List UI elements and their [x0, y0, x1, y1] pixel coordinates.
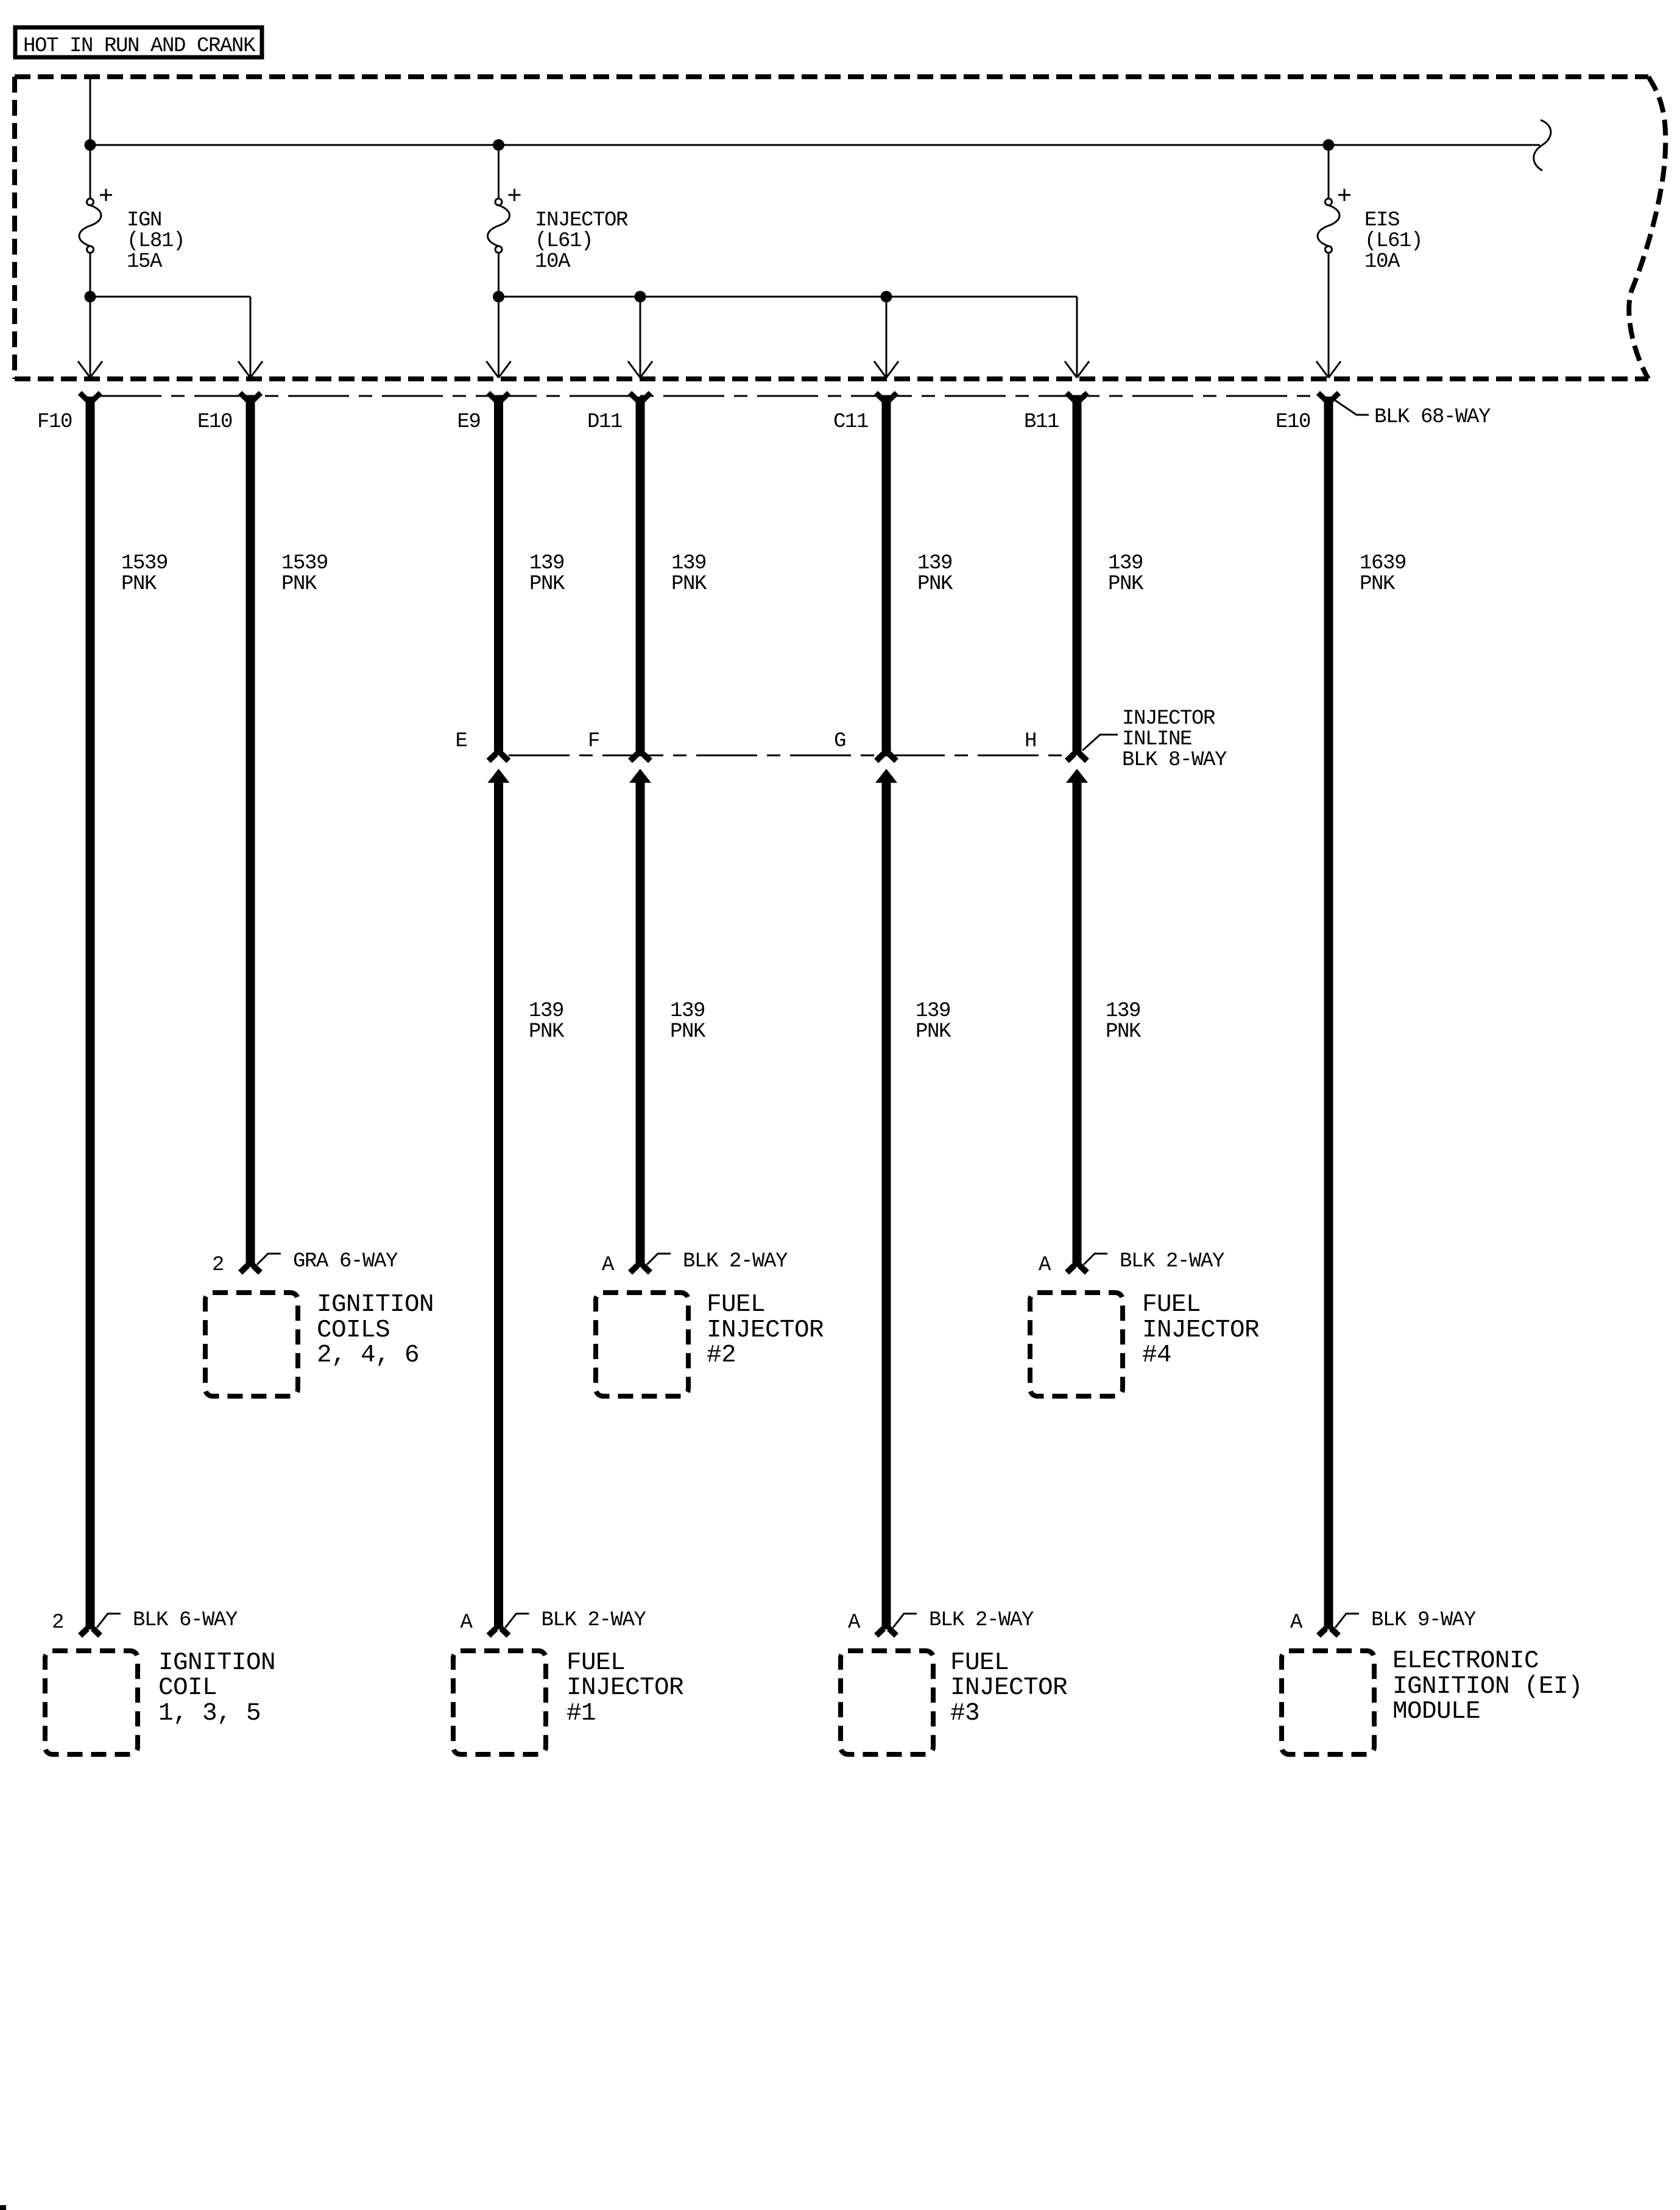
svg-text:139: 139 — [529, 1000, 563, 1023]
svg-text:GRA 6-WAY: GRA 6-WAY — [293, 1250, 398, 1273]
svg-text:INJECTOR: INJECTOR — [1142, 1316, 1259, 1344]
svg-text:EIS: EIS — [1364, 209, 1399, 232]
svg-text:BLK 6-WAY: BLK 6-WAY — [133, 1609, 238, 1632]
svg-text:PNK: PNK — [670, 1020, 706, 1043]
svg-text:BLK 9-WAY: BLK 9-WAY — [1371, 1609, 1476, 1632]
svg-text:FUEL: FUEL — [950, 1649, 1009, 1677]
svg-text:1539: 1539 — [281, 552, 328, 575]
svg-text:G: G — [834, 730, 845, 753]
svg-text:PNK: PNK — [1108, 573, 1144, 596]
svg-text:E10: E10 — [1276, 411, 1310, 434]
svg-text:FUEL: FUEL — [1142, 1291, 1201, 1319]
svg-text:A: A — [1290, 1611, 1303, 1634]
svg-text:139: 139 — [670, 1000, 705, 1023]
svg-text:B11: B11 — [1024, 411, 1059, 434]
svg-text:F: F — [588, 730, 599, 753]
svg-text:#3: #3 — [950, 1700, 979, 1728]
svg-text:COILS: COILS — [317, 1316, 390, 1344]
svg-text:10A: 10A — [1364, 250, 1400, 274]
svg-text:139: 139 — [917, 552, 952, 575]
svg-text:PNK: PNK — [1360, 573, 1396, 596]
svg-text:PNK: PNK — [529, 573, 565, 596]
svg-text:FUEL: FUEL — [707, 1291, 765, 1319]
svg-text:(L81): (L81) — [127, 230, 185, 253]
svg-text:A: A — [1039, 1254, 1051, 1277]
svg-text:139: 139 — [916, 1000, 950, 1023]
svg-text:MODULE: MODULE — [1392, 1698, 1480, 1726]
svg-text:ELECTRONIC: ELECTRONIC — [1392, 1647, 1539, 1675]
svg-text:PNK: PNK — [121, 573, 157, 596]
svg-text:PNK: PNK — [281, 573, 317, 596]
svg-text:IGN: IGN — [127, 209, 161, 232]
svg-text:A: A — [461, 1611, 473, 1634]
svg-text:INJECTOR: INJECTOR — [1122, 707, 1215, 730]
svg-text:IGNITION: IGNITION — [317, 1291, 434, 1319]
svg-text:IGNITION (EI): IGNITION (EI) — [1392, 1673, 1583, 1701]
svg-text:139: 139 — [529, 552, 564, 575]
svg-text:F10: F10 — [37, 411, 72, 434]
svg-text:COIL: COIL — [158, 1674, 217, 1702]
svg-text:PNK: PNK — [1106, 1020, 1142, 1043]
svg-text:2: 2 — [212, 1254, 224, 1277]
svg-text:139: 139 — [1108, 552, 1143, 575]
svg-text:15A: 15A — [127, 250, 163, 274]
svg-text:#2: #2 — [707, 1341, 736, 1369]
svg-text:BLK 2-WAY: BLK 2-WAY — [929, 1609, 1034, 1632]
svg-text:FUEL: FUEL — [566, 1649, 625, 1677]
svg-text:E10: E10 — [197, 411, 232, 434]
svg-text:BLK 2-WAY: BLK 2-WAY — [542, 1609, 646, 1632]
svg-text:BLK 68-WAY: BLK 68-WAY — [1374, 406, 1491, 429]
svg-text:A: A — [602, 1254, 615, 1277]
svg-text:INJECTOR: INJECTOR — [566, 1674, 683, 1702]
svg-text:INJECTOR: INJECTOR — [535, 209, 628, 232]
svg-text:1, 3, 5: 1, 3, 5 — [158, 1700, 261, 1728]
svg-text:#4: #4 — [1142, 1341, 1171, 1369]
svg-text:PNK: PNK — [917, 573, 953, 596]
svg-text:(L61): (L61) — [535, 230, 593, 253]
svg-text:INJECTOR: INJECTOR — [707, 1316, 824, 1344]
svg-text:#1: #1 — [566, 1700, 596, 1728]
svg-text:BLK 2-WAY: BLK 2-WAY — [683, 1250, 788, 1273]
svg-text:2, 4, 6: 2, 4, 6 — [317, 1341, 419, 1369]
svg-text:PNK: PNK — [529, 1020, 565, 1043]
svg-text:PNK: PNK — [916, 1020, 951, 1043]
svg-text:BLK 8-WAY: BLK 8-WAY — [1122, 749, 1227, 772]
svg-text:E9: E9 — [457, 411, 481, 434]
svg-text:A: A — [848, 1611, 861, 1634]
svg-text:H: H — [1025, 730, 1036, 753]
svg-text:2: 2 — [52, 1611, 63, 1634]
svg-text:D11: D11 — [587, 411, 622, 434]
svg-text:IGNITION: IGNITION — [158, 1649, 275, 1677]
svg-text:139: 139 — [1106, 1000, 1140, 1023]
svg-text:PNK: PNK — [671, 573, 707, 596]
svg-text:1539: 1539 — [121, 552, 168, 575]
svg-text:BLK 2-WAY: BLK 2-WAY — [1120, 1250, 1224, 1273]
svg-text:10A: 10A — [535, 250, 571, 274]
svg-text:E: E — [456, 730, 467, 753]
svg-text:1639: 1639 — [1360, 552, 1406, 575]
svg-text:INJECTOR: INJECTOR — [950, 1674, 1067, 1702]
svg-text:C11: C11 — [833, 411, 868, 434]
svg-text:(L61): (L61) — [1364, 230, 1422, 253]
svg-text:139: 139 — [671, 552, 706, 575]
svg-text:INLINE: INLINE — [1122, 728, 1191, 751]
svg-text:HOT IN RUN AND CRANK: HOT IN RUN AND CRANK — [23, 35, 256, 58]
